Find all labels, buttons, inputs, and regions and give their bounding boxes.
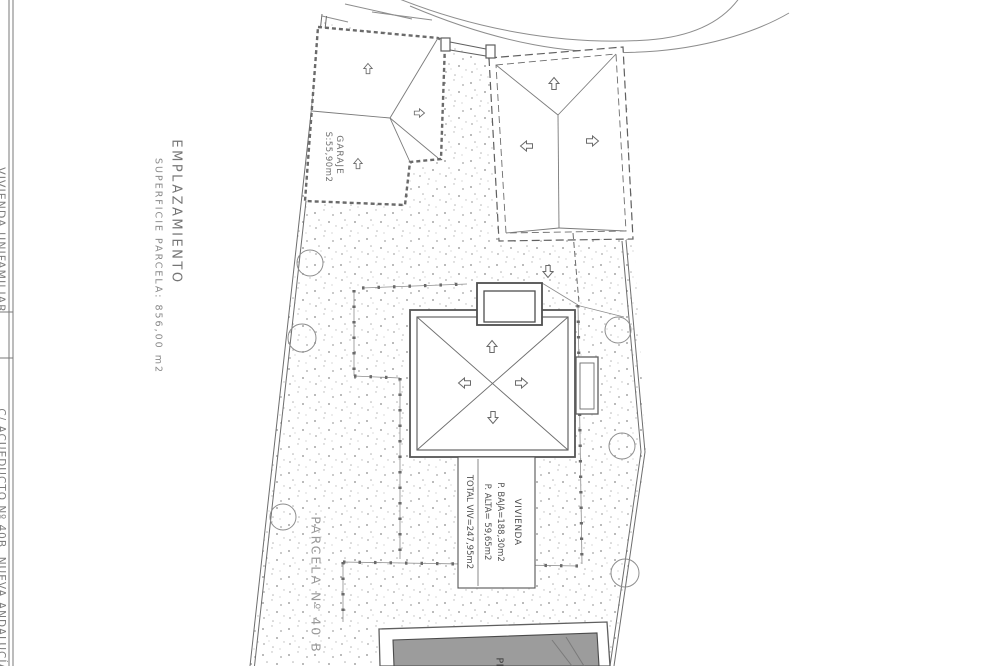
plan-subtitle-label: SUPERFICIE PARCELA: 856,00 m2 (153, 158, 164, 374)
garage-name-label: GARAJE (334, 135, 344, 175)
site-plan-sheet: VIVIENDA UNIFAMILIAR C/ ACUEDUCTO Nº 40B… (0, 0, 1000, 666)
site-plan-drawing (0, 0, 1000, 666)
dwelling-name-label: VIVIENDA (512, 499, 522, 546)
pool-name-label: PISCINA (494, 657, 505, 666)
dwelling-ground-floor-label: P. BAJA=188,30m2 (495, 482, 505, 562)
dwelling-total-label: TOTAL VIV=247,95m2 (464, 475, 474, 569)
balcony (576, 357, 598, 414)
title-block-address-label: C/ ACUEDUCTO Nº 40B, NUEVA ANDALUCÍA (0, 408, 7, 666)
dwelling-upper-floor-label: P. ALTA= 59,65m2 (482, 484, 492, 561)
main-house (410, 310, 575, 457)
plan-title-label: EMPLAZAMIENTO (169, 139, 184, 284)
parcel-number-label: PARCELA Nº 40 B (309, 516, 324, 653)
title-block-project-label: VIVIENDA UNIFAMILIAR (0, 167, 8, 313)
garage-area-label: S:55,90m2 (323, 132, 333, 183)
roof-tower (477, 283, 542, 325)
